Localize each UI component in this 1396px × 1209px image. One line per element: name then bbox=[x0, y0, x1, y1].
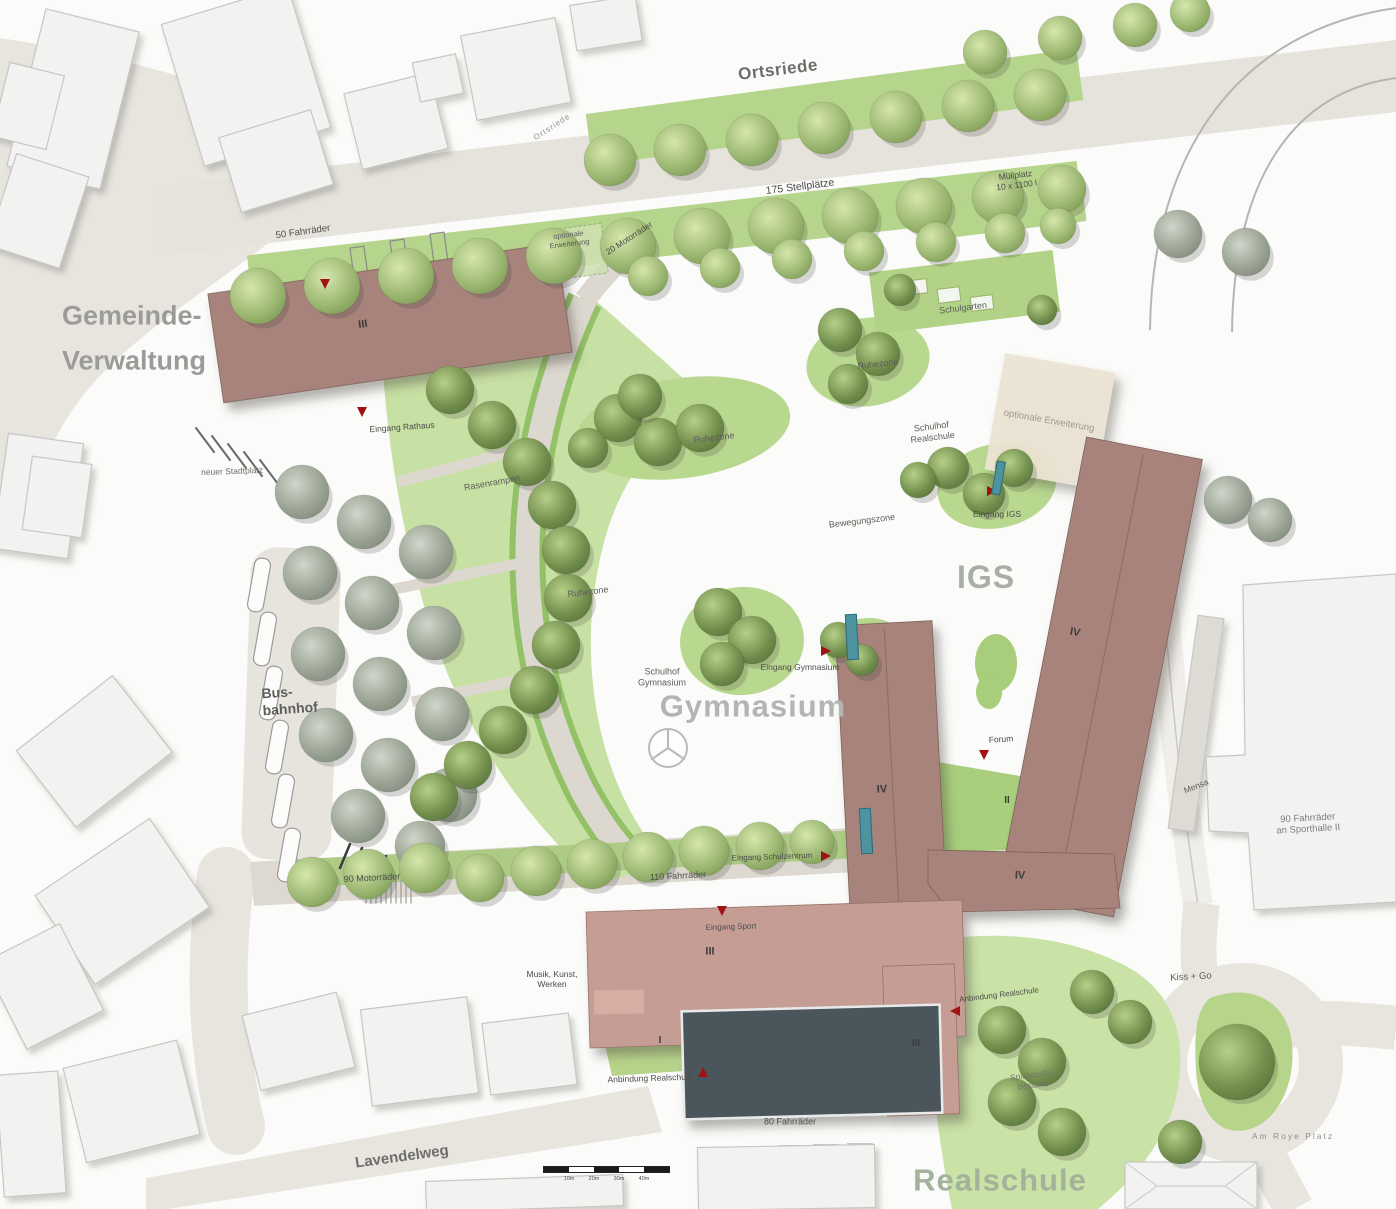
tree-icon bbox=[337, 495, 391, 549]
tree-icon bbox=[798, 102, 850, 154]
tree-icon bbox=[468, 401, 516, 449]
tree-icon bbox=[503, 438, 551, 486]
tree-icon bbox=[1222, 228, 1270, 276]
tree-icon bbox=[870, 91, 922, 143]
tree-icon bbox=[1154, 210, 1202, 258]
tree-icon bbox=[343, 849, 393, 899]
tree-icon bbox=[426, 366, 474, 414]
tree-icon bbox=[700, 642, 744, 686]
tree-icon bbox=[1070, 970, 1114, 1014]
tree-icon bbox=[700, 248, 740, 288]
tree-icon bbox=[884, 274, 916, 306]
tree-icon bbox=[1040, 208, 1076, 244]
stadtplatz-ticks bbox=[196, 428, 278, 484]
tree-icon bbox=[828, 364, 868, 404]
tree-icon bbox=[856, 332, 900, 376]
tree-icon bbox=[900, 462, 936, 498]
tree-icon bbox=[736, 822, 784, 870]
tree-icon bbox=[345, 576, 399, 630]
tree-icon bbox=[230, 268, 286, 324]
site-plan-canvas bbox=[0, 0, 1396, 1209]
schulgarten-beet-2 bbox=[937, 287, 961, 304]
tree-icon bbox=[479, 706, 527, 754]
tree-icon bbox=[361, 738, 415, 792]
tree-icon bbox=[1199, 1024, 1275, 1100]
schulgarten-beet-3 bbox=[970, 295, 994, 312]
tree-icon bbox=[542, 526, 590, 574]
tree-icon bbox=[528, 481, 576, 529]
tree-icon bbox=[978, 1006, 1026, 1054]
tree-icon bbox=[510, 666, 558, 714]
tree-icon bbox=[568, 428, 608, 468]
tree-icon bbox=[995, 449, 1033, 487]
tree-icon bbox=[410, 773, 458, 821]
tree-icon bbox=[679, 826, 729, 876]
tree-icon bbox=[378, 248, 434, 304]
tree-icon bbox=[407, 606, 461, 660]
tree-icon bbox=[415, 687, 469, 741]
tree-icon bbox=[299, 708, 353, 762]
tree-icon bbox=[818, 308, 862, 352]
tree-icon bbox=[275, 465, 329, 519]
realschule-bestand-gebaeude bbox=[1125, 1162, 1257, 1209]
tree-icon bbox=[1113, 3, 1157, 47]
tree-icon bbox=[567, 839, 617, 889]
tree-icon bbox=[511, 846, 561, 896]
tree-icon bbox=[634, 418, 682, 466]
tree-icon bbox=[584, 134, 636, 186]
tree-icon bbox=[942, 80, 994, 132]
tree-icon bbox=[985, 213, 1025, 253]
tree-icon bbox=[452, 238, 508, 294]
tree-icon bbox=[726, 114, 778, 166]
tree-icon bbox=[844, 231, 884, 271]
tree-icon bbox=[846, 644, 878, 676]
tree-icon bbox=[963, 30, 1007, 74]
tree-icon bbox=[331, 789, 385, 843]
tree-icon bbox=[283, 546, 337, 600]
tree-icon bbox=[916, 222, 956, 262]
tree-icon bbox=[628, 256, 668, 296]
tree-icon bbox=[1014, 69, 1066, 121]
tree-icon bbox=[532, 621, 580, 669]
tree-icon bbox=[544, 574, 592, 622]
road-connector-west bbox=[219, 876, 236, 1126]
sporthalle-neu-gebaeude bbox=[682, 1005, 943, 1120]
tree-icon bbox=[526, 228, 582, 284]
tree-icon bbox=[399, 843, 449, 893]
site-plan: OrtsriedeOrtsriede175 StellplätzeMüllpla… bbox=[0, 0, 1396, 1209]
tree-icon bbox=[304, 258, 360, 314]
emblem-icon bbox=[649, 729, 687, 767]
tree-icon bbox=[772, 239, 812, 279]
tree-icon bbox=[790, 820, 834, 864]
tree-icon bbox=[654, 124, 706, 176]
tree-icon bbox=[287, 857, 337, 907]
tree-icon bbox=[988, 1078, 1036, 1126]
tree-icon bbox=[1158, 1120, 1202, 1164]
tree-icon bbox=[1018, 1038, 1066, 1086]
tree-icon bbox=[1248, 498, 1292, 542]
tree-icon bbox=[353, 657, 407, 711]
tree-icon bbox=[399, 525, 453, 579]
tree-icon bbox=[456, 854, 504, 902]
tree-icon bbox=[676, 404, 724, 452]
tree-icon bbox=[1038, 165, 1086, 213]
tree-icon bbox=[1027, 295, 1057, 325]
tree-icon bbox=[291, 627, 345, 681]
tree-icon bbox=[623, 832, 673, 882]
tree-icon bbox=[1038, 1108, 1086, 1156]
tree-icon bbox=[1204, 476, 1252, 524]
green-blob-klein-2 bbox=[976, 675, 1002, 709]
sporthalle-2 bbox=[1206, 574, 1396, 910]
tree-icon bbox=[1108, 1000, 1152, 1044]
musikbau-anbau-hell bbox=[594, 990, 644, 1015]
tree-icon bbox=[1038, 16, 1082, 60]
tree-icon bbox=[618, 374, 662, 418]
